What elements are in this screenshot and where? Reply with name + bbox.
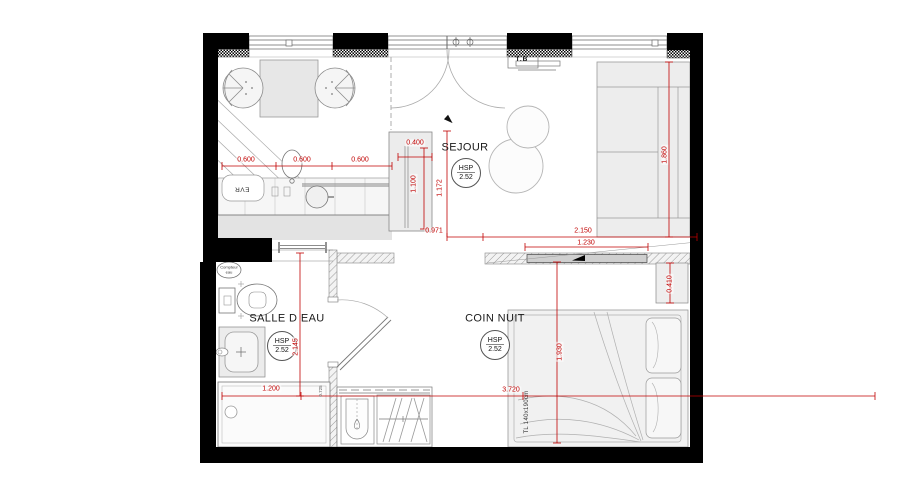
dim-shower-width: 1.200: [261, 386, 281, 393]
towel-radiator-icon: [272, 242, 333, 261]
chair-left-icon: [223, 68, 263, 108]
dim-tall-unit-width: 0.400: [405, 140, 425, 147]
room-label-coin-nuit: COIN NUIT: [465, 314, 525, 325]
partition-sliding: [337, 242, 697, 264]
dining-table: [260, 60, 318, 117]
hsp-label: HSP: [275, 338, 289, 345]
water-meter-label: Compteur eau: [220, 266, 238, 275]
dim-shelf-depth: 0.410: [667, 274, 674, 294]
dim-kitchen-run-1: 0.600: [236, 157, 256, 164]
electrical-board-label: T.B: [516, 57, 529, 64]
dim-shower-side-note: 0.725: [319, 385, 324, 396]
floor-plan: SEJOUR COIN NUIT SALLE D EAU HSP 2.52 HS…: [0, 0, 900, 500]
entry-door-swings: [391, 50, 505, 108]
dim-sejour-depth: 1.172: [437, 178, 444, 198]
dim-bed-area-depth: 1.930: [557, 342, 564, 362]
plan-drawing: [0, 0, 900, 500]
dim-partition-length: 2.150: [573, 228, 593, 235]
kitchen-sink-label: EVR: [235, 185, 250, 192]
sofa: [597, 62, 690, 237]
chair-right-icon: [315, 68, 355, 108]
washbasin-icon: [216, 327, 265, 377]
insulation-strips: [218, 49, 691, 58]
hsp-value: 2.52: [457, 172, 475, 181]
dim-sliding-door-width: 1.230: [576, 240, 596, 247]
hsp-value: 2.52: [486, 344, 504, 353]
dim-kitchen-run-2: 0.600: [292, 157, 312, 164]
hsp-badge-sejour: HSP 2.52: [451, 158, 481, 188]
dim-salle-d-eau-depth: 2.145: [293, 337, 300, 357]
window-right: [572, 36, 667, 49]
window-left: [249, 36, 333, 49]
room-label-sejour: SEJOUR: [441, 143, 488, 154]
dim-coin-nuit-width: 3.720: [501, 387, 521, 394]
kitchen-counter: [218, 175, 392, 215]
hsp-badge-coin-nuit: HSP 2.52: [480, 330, 510, 360]
dim-tall-unit-depth: 1.100: [411, 174, 418, 194]
water-meter-line2: eau: [220, 270, 238, 275]
hsp-value: 2.52: [273, 345, 291, 354]
bathroom-door-swing: [337, 300, 391, 370]
window-center: [388, 36, 507, 49]
hsp-label: HSP: [488, 337, 502, 344]
dim-passage-width: 0.971: [424, 228, 444, 235]
bed-size-label: TL 140x190cm: [524, 390, 530, 433]
hsp-label: HSP: [459, 165, 473, 172]
dim-kitchen-run-3: 0.600: [350, 157, 370, 164]
room-label-salle-d-eau: SALLE D EAU: [249, 314, 324, 325]
plant-icon: [489, 106, 549, 193]
bed: [508, 310, 688, 447]
dim-sofa-length: 1.860: [662, 145, 669, 165]
